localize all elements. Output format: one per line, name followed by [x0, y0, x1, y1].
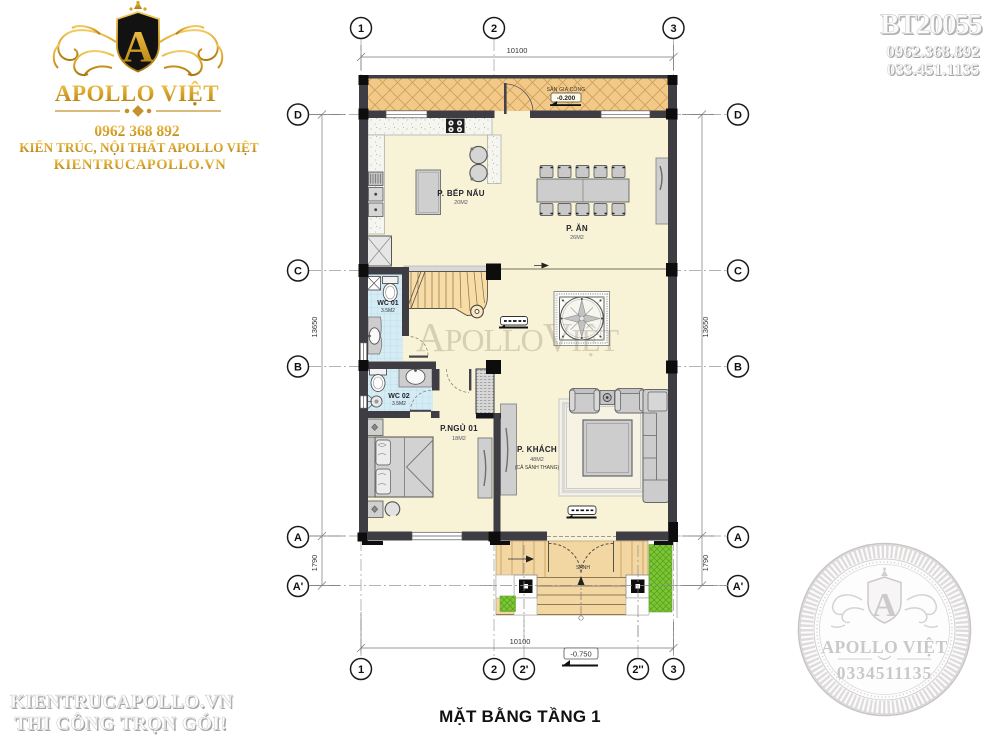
- svg-text:APOLLO VIỆT: APOLLO VIỆT: [821, 637, 947, 657]
- svg-text:2': 2': [520, 664, 529, 676]
- svg-text:3.5M2: 3.5M2: [392, 401, 406, 407]
- svg-text:48M2: 48M2: [530, 457, 544, 463]
- svg-text:20M2: 20M2: [454, 200, 468, 206]
- svg-text:B: B: [734, 362, 742, 374]
- svg-text:1790: 1790: [701, 555, 710, 572]
- svg-text:MẶT BẰNG TẦNG 1: MẶT BẰNG TẦNG 1: [439, 707, 601, 726]
- svg-text:0962 368 892: 0962 368 892: [94, 123, 180, 140]
- svg-text:KIENTRUCAPOLLO.VN: KIENTRUCAPOLLO.VN: [10, 692, 233, 713]
- svg-text:A: A: [872, 587, 897, 624]
- svg-text:P. BẾP NẤU: P. BẾP NẤU: [437, 188, 485, 198]
- svg-text:A: A: [294, 532, 302, 544]
- svg-text:10100: 10100: [510, 637, 531, 646]
- svg-text:D: D: [734, 110, 742, 122]
- svg-text:26M2: 26M2: [570, 235, 584, 241]
- svg-text:A: A: [734, 532, 742, 544]
- svg-text:1: 1: [358, 23, 364, 35]
- svg-text:3: 3: [670, 664, 676, 676]
- svg-text:1: 1: [358, 664, 364, 676]
- svg-text:P.NGỦ 01: P.NGỦ 01: [440, 424, 478, 433]
- svg-text:WC 01: WC 01: [377, 300, 399, 307]
- svg-text:C: C: [734, 266, 742, 278]
- svg-text:B: B: [294, 362, 302, 374]
- svg-text:APOLLO VIỆT: APOLLO VIỆT: [55, 81, 219, 106]
- svg-text:BT20055: BT20055: [880, 9, 982, 41]
- svg-text:18M2: 18M2: [452, 436, 466, 442]
- svg-text:1790: 1790: [310, 555, 319, 572]
- svg-text:3.5M2: 3.5M2: [381, 308, 395, 314]
- svg-text:A': A': [733, 581, 744, 593]
- svg-text:0962.368.892: 0962.368.892: [886, 42, 980, 61]
- svg-text:10100: 10100: [507, 46, 528, 55]
- svg-text:2: 2: [491, 23, 497, 35]
- svg-text:C: C: [294, 266, 302, 278]
- svg-text:D: D: [294, 110, 302, 122]
- svg-text:13650: 13650: [701, 317, 710, 338]
- svg-text:SẢNH: SẢNH: [576, 564, 590, 571]
- svg-text:3: 3: [670, 23, 676, 35]
- svg-text:A': A': [293, 581, 304, 593]
- svg-text:KIENTRUCAPOLLO.VN: KIENTRUCAPOLLO.VN: [54, 157, 226, 173]
- svg-text:0334511135: 0334511135: [837, 663, 933, 683]
- svg-text:2'': 2'': [632, 664, 644, 676]
- svg-text:P. KHÁCH: P. KHÁCH: [517, 445, 557, 454]
- svg-text:THI CÔNG TRỌN GÓI!: THI CÔNG TRỌN GÓI!: [14, 713, 227, 735]
- svg-text:WC 02: WC 02: [388, 393, 410, 400]
- svg-text:2: 2: [491, 664, 497, 676]
- svg-text:SÂN GIA CÔNG: SÂN GIA CÔNG: [547, 86, 586, 93]
- svg-text:A: A: [122, 22, 154, 71]
- svg-text:033.451.1135: 033.451.1135: [887, 60, 980, 79]
- svg-text:13650: 13650: [310, 317, 319, 338]
- svg-text:(CẢ SẢNH THANG): (CẢ SẢNH THANG): [515, 464, 560, 471]
- svg-text:P. ĂN: P. ĂN: [566, 224, 588, 233]
- svg-text:KIẾN TRÚC, NỘI THẤT APOLLO VIỆ: KIẾN TRÚC, NỘI THẤT APOLLO VIỆT: [19, 140, 259, 155]
- svg-text:-0.750: -0.750: [570, 650, 591, 659]
- svg-text:-0.200: -0.200: [557, 95, 576, 102]
